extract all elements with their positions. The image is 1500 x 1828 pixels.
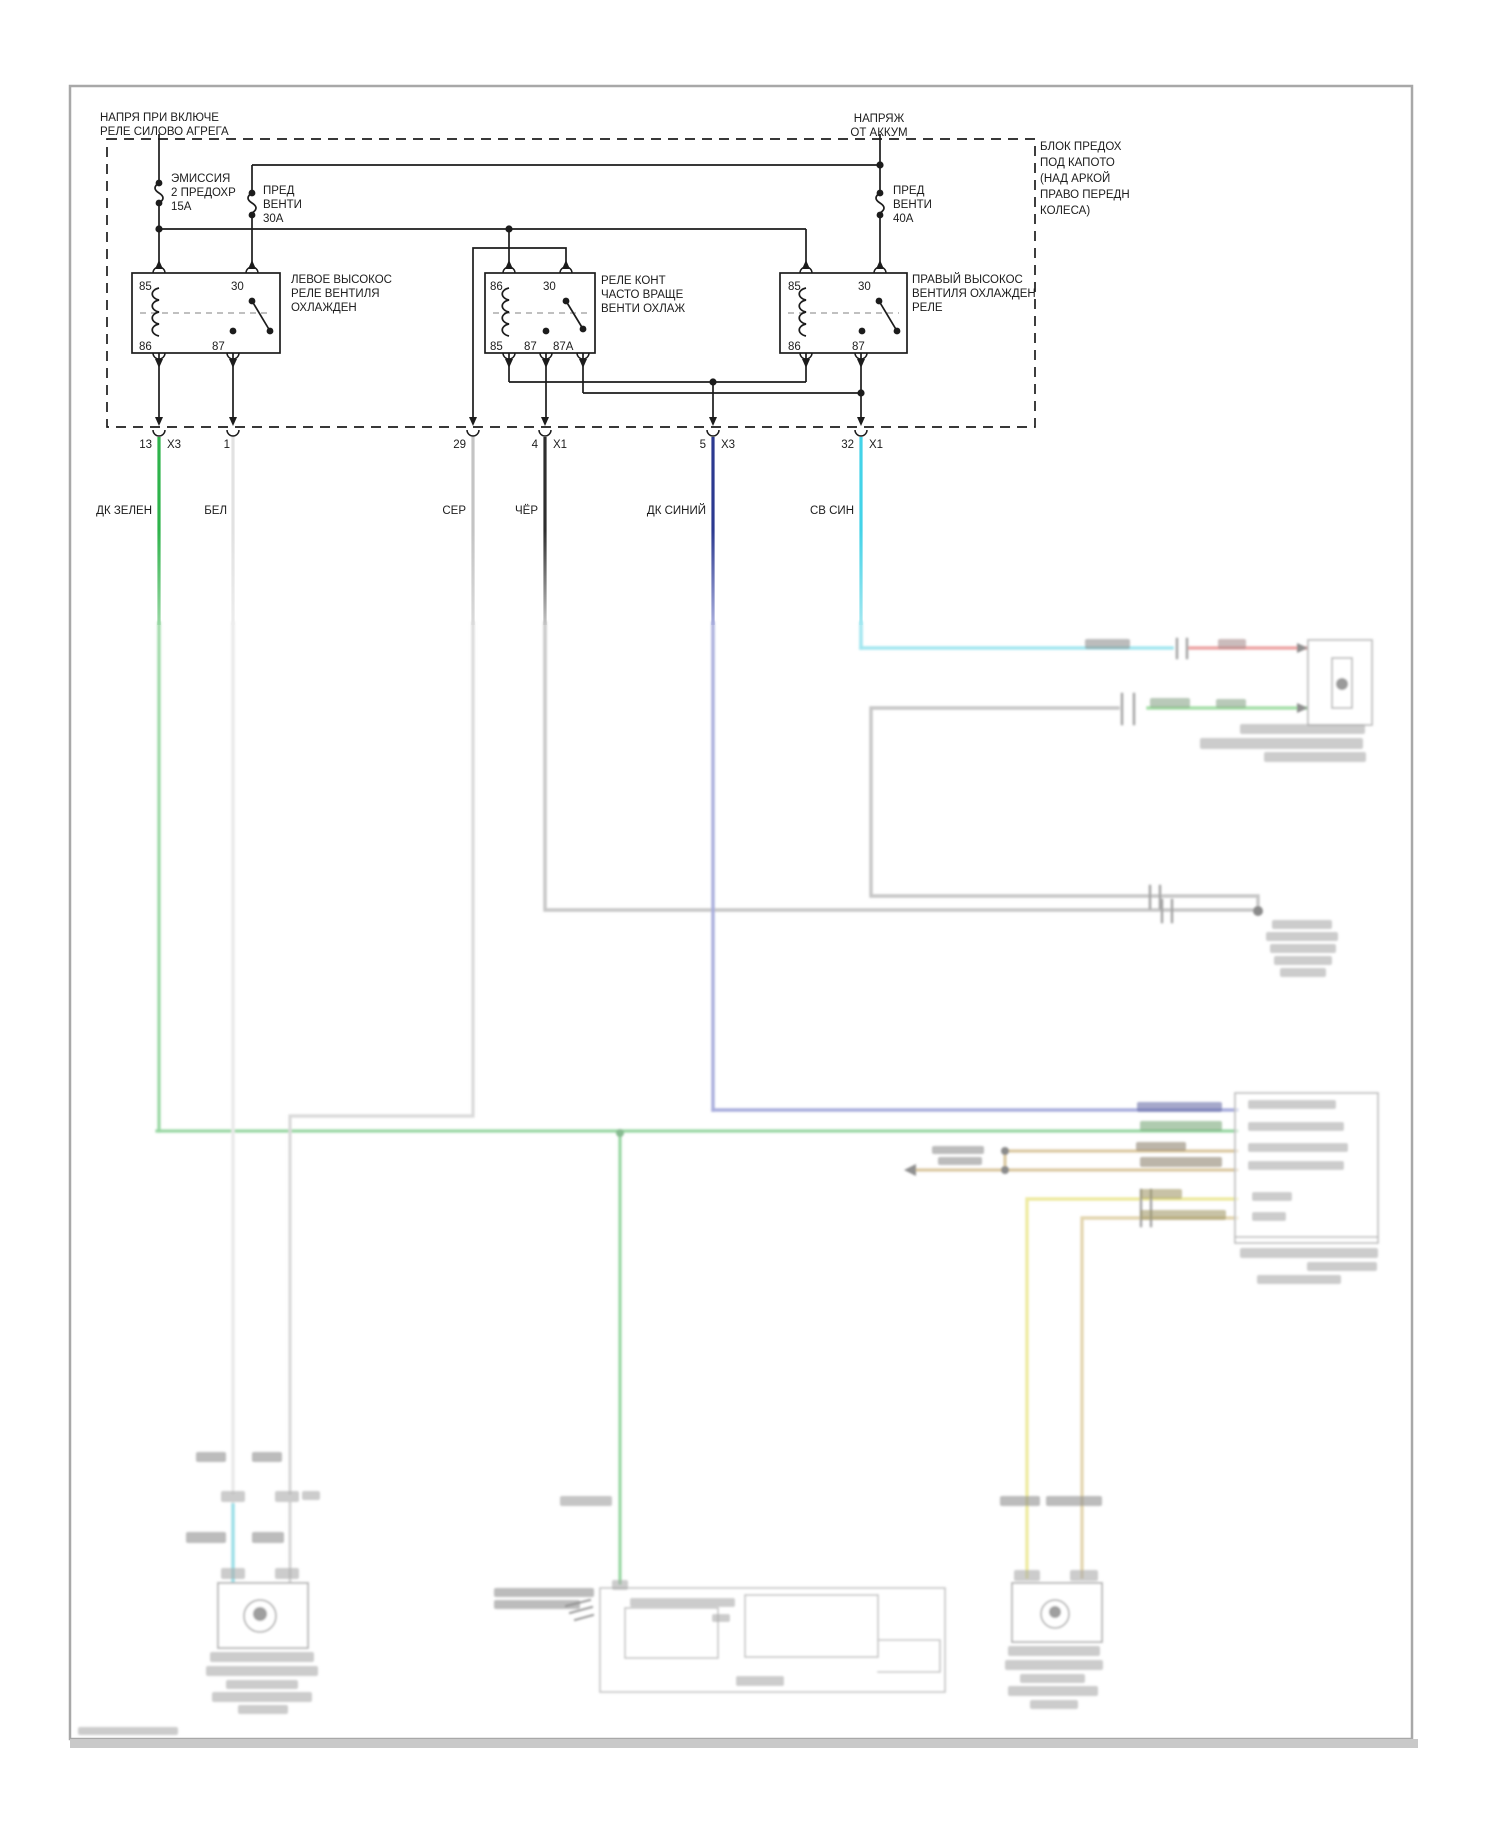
left-fan-motor [218,1583,308,1648]
svg-text:КОЛЕСА): КОЛЕСА) [1040,205,1090,217]
svg-text:ВЕНТИ: ВЕНТИ [893,199,932,211]
svg-text:85: 85 [490,341,503,353]
svg-text:ВЕНТИЛЯ ОХЛАЖДЕН: ВЕНТИЛЯ ОХЛАЖДЕН [912,288,1036,300]
svg-text:13: 13 [139,439,152,451]
svg-text:87: 87 [212,341,225,353]
svg-text:X3: X3 [167,439,181,451]
svg-text:СЕР: СЕР [442,505,466,517]
svg-text:2 ПРЕДОХР: 2 ПРЕДОХР [171,187,236,199]
svg-text:87A: 87A [553,341,574,353]
svg-text:РЕЛЕ СИЛОВО АГРЕГА: РЕЛЕ СИЛОВО АГРЕГА [100,126,229,138]
svg-text:86: 86 [139,341,152,353]
feed-right-label: НАПРЯЖ [854,113,905,125]
svg-text:ЛЕВОЕ ВЫСОКОС: ЛЕВОЕ ВЫСОКОС [291,274,392,286]
svg-text:X1: X1 [869,439,883,451]
svg-text:30: 30 [231,281,244,293]
svg-text:ВЕНТИ: ВЕНТИ [263,199,302,211]
svg-text:15А: 15А [171,201,192,213]
svg-text:1: 1 [224,439,230,451]
right-fan-motor [1012,1583,1102,1642]
svg-text:X1: X1 [553,439,567,451]
svg-text:86: 86 [490,281,503,293]
svg-text:ПРЕД: ПРЕД [263,185,295,197]
svg-text:ПОД КАПОТО: ПОД КАПОТО [1040,157,1115,169]
svg-text:4: 4 [532,439,539,451]
svg-text:29: 29 [453,439,466,451]
svg-text:5: 5 [700,439,706,451]
svg-text:ЭМИССИЯ: ЭМИССИЯ [171,173,230,185]
svg-text:ЧЁР: ЧЁР [515,505,538,517]
svg-text:ДК ЗЕЛЕН: ДК ЗЕЛЕН [96,505,152,517]
svg-text:ДК СИНИЙ: ДК СИНИЙ [647,504,706,517]
svg-text:РЕЛЕ: РЕЛЕ [912,302,943,314]
feed-left-label: НАПРЯ ПРИ ВКЛЮЧЕ [100,112,219,124]
svg-text:ОТ АККУМ: ОТ АККУМ [850,127,907,139]
svg-text:85: 85 [139,281,152,293]
svg-text:ПРАВО ПЕРЕДН: ПРАВО ПЕРЕДН [1040,189,1130,201]
svg-text:ОХЛАЖДЕН: ОХЛАЖДЕН [291,302,357,314]
svg-text:86: 86 [788,341,801,353]
svg-text:30А: 30А [263,213,284,225]
svg-text:ВЕНТИ ОХЛАЖ: ВЕНТИ ОХЛАЖ [601,303,685,315]
svg-text:(НАД АРКОЙ: (НАД АРКОЙ [1040,172,1110,185]
svg-text:X3: X3 [721,439,735,451]
svg-text:ПРАВЫЙ ВЫСОКОС: ПРАВЫЙ ВЫСОКОС [912,273,1023,286]
svg-text:РЕЛЕ КОНТ: РЕЛЕ КОНТ [601,275,666,287]
svg-text:40А: 40А [893,213,914,225]
svg-text:30: 30 [858,281,871,293]
svg-text:32: 32 [841,439,854,451]
svg-text:РЕЛЕ ВЕНТИЛЯ: РЕЛЕ ВЕНТИЛЯ [291,288,380,300]
svg-text:СВ СИН: СВ СИН [810,505,854,517]
wiring-diagram-svg: НАПРЯ ПРИ ВКЛЮЧЕ РЕЛЕ СИЛОВО АГРЕГА НАПР… [0,0,1500,1828]
svg-text:87: 87 [852,341,865,353]
svg-text:85: 85 [788,281,801,293]
svg-text:ПРЕД: ПРЕД [893,185,925,197]
page-frame [70,86,1418,1748]
pressure-sensor-box [1308,640,1372,725]
svg-text:87: 87 [524,341,537,353]
svg-text:ЧАСТО ВРАЩЕ: ЧАСТО ВРАЩЕ [601,289,684,301]
scanned-wiring-diagram-page: НАПРЯ ПРИ ВКЛЮЧЕ РЕЛЕ СИЛОВО АГРЕГА НАПР… [0,0,1500,1828]
svg-text:БЕЛ: БЕЛ [204,505,227,517]
svg-text:БЛОК ПРЕДОХ: БЛОК ПРЕДОХ [1040,141,1122,153]
svg-text:30: 30 [543,281,556,293]
